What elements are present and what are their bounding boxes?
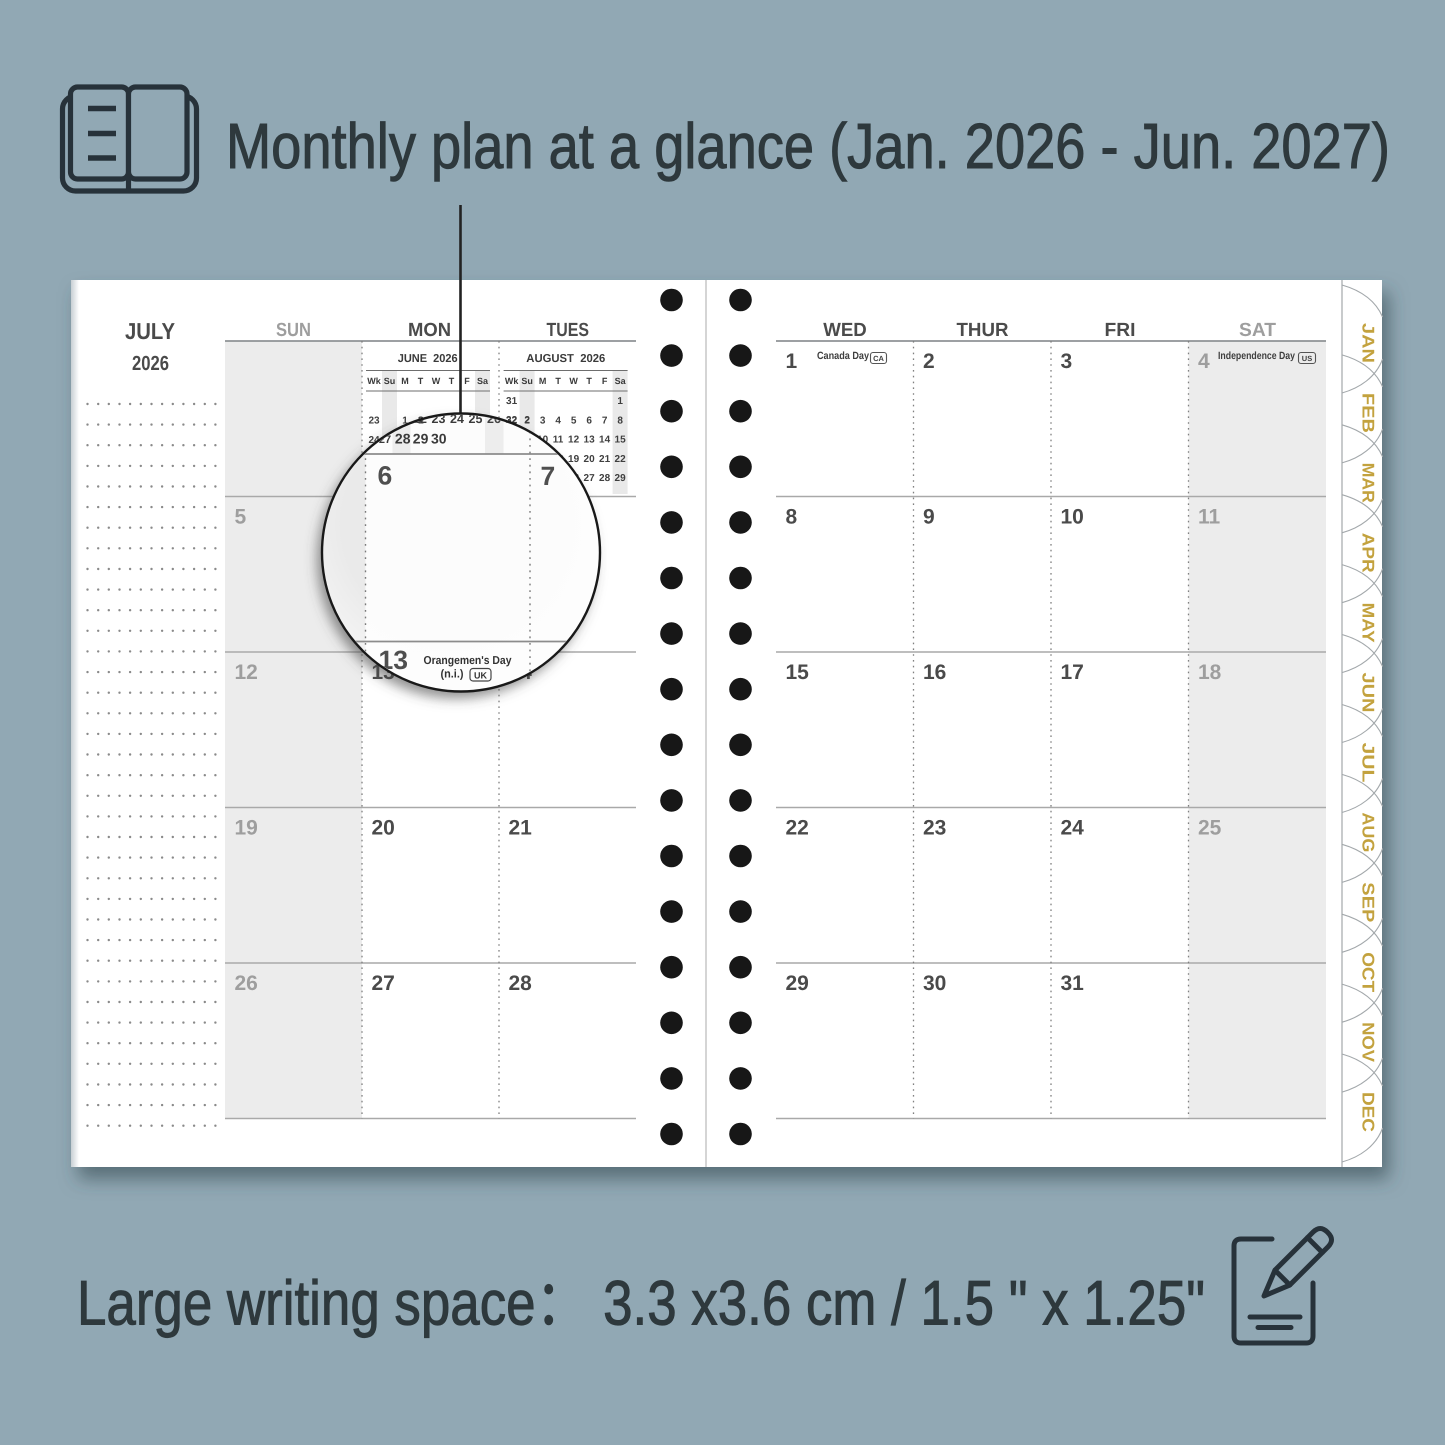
svg-text:MAY: MAY	[1359, 603, 1378, 644]
svg-text:19: 19	[235, 817, 258, 840]
svg-text:5: 5	[235, 506, 247, 529]
svg-text:Sa: Sa	[615, 376, 627, 386]
svg-text:7: 7	[602, 415, 608, 426]
svg-text:T: T	[418, 376, 424, 386]
svg-text:17: 17	[1061, 661, 1084, 684]
svg-text:Wk: Wk	[505, 376, 519, 386]
svg-text:APR: APR	[1359, 533, 1378, 573]
svg-text:UK: UK	[474, 670, 487, 680]
svg-text:20: 20	[372, 817, 395, 840]
svg-text:NOV: NOV	[1359, 1022, 1378, 1063]
svg-text:Orangemen's Day: Orangemen's Day	[424, 655, 513, 667]
svg-text:29: 29	[615, 473, 627, 484]
svg-text:6: 6	[586, 415, 592, 426]
svg-text:SEP: SEP	[1359, 882, 1378, 922]
svg-text:Independence Day: Independence Day	[1218, 350, 1295, 362]
svg-text:4: 4	[1198, 350, 1210, 373]
svg-text:18: 18	[1198, 661, 1222, 684]
svg-text:AUG: AUG	[1359, 812, 1378, 852]
svg-text:W: W	[569, 376, 578, 386]
svg-text:12: 12	[568, 435, 580, 446]
svg-text:FEB: FEB	[1359, 393, 1378, 433]
svg-text:F: F	[602, 376, 608, 386]
svg-text:3: 3	[1061, 350, 1073, 373]
svg-text:TUES: TUES	[547, 320, 590, 341]
svg-text:19: 19	[568, 454, 580, 465]
svg-text:Monthly plan at a glance (Jan.: Monthly plan at a glance (Jan. 2026 - Ju…	[226, 110, 1390, 182]
svg-text:31: 31	[506, 396, 518, 407]
svg-text:Su: Su	[521, 376, 533, 386]
svg-text:24: 24	[1061, 817, 1085, 840]
svg-text:SUN: SUN	[276, 320, 311, 341]
svg-text:13: 13	[584, 435, 596, 446]
svg-text:9: 9	[923, 506, 935, 529]
svg-text:23: 23	[923, 817, 946, 840]
svg-text:1: 1	[617, 396, 623, 407]
svg-text:Su: Su	[384, 376, 396, 386]
svg-text:22: 22	[615, 454, 627, 465]
svg-text:27: 27	[584, 473, 596, 484]
svg-text:Sa: Sa	[477, 376, 489, 386]
svg-text:1: 1	[786, 350, 798, 373]
svg-text:(n.i.): (n.i.)	[441, 669, 464, 681]
svg-text:21: 21	[509, 817, 533, 840]
svg-text:JUL: JUL	[1359, 743, 1378, 783]
svg-text:25: 25	[1198, 817, 1222, 840]
svg-text:15: 15	[786, 661, 810, 684]
svg-text:16: 16	[923, 661, 946, 684]
svg-text:8: 8	[617, 415, 623, 426]
svg-text:OCT: OCT	[1359, 952, 1378, 993]
svg-text:Wk: Wk	[367, 376, 381, 386]
svg-text:11: 11	[1198, 506, 1221, 529]
svg-text:20: 20	[584, 454, 596, 465]
svg-text:WED: WED	[823, 320, 867, 341]
svg-text:2: 2	[524, 415, 530, 426]
svg-text:MON: MON	[408, 320, 451, 341]
svg-text:28: 28	[599, 473, 611, 484]
svg-text:DEC: DEC	[1359, 1092, 1378, 1132]
svg-text:26: 26	[235, 972, 258, 995]
svg-text:12: 12	[235, 661, 258, 684]
svg-text:Canada Day: Canada Day	[817, 350, 869, 362]
svg-text:F: F	[464, 376, 470, 386]
svg-text:JAN: JAN	[1359, 323, 1378, 363]
svg-text:JUN: JUN	[1359, 673, 1378, 713]
svg-text:2: 2	[923, 350, 935, 373]
svg-text:US: US	[1302, 354, 1312, 363]
svg-text:T: T	[449, 376, 455, 386]
svg-text:W: W	[432, 376, 441, 386]
svg-text:2026: 2026	[132, 352, 169, 375]
svg-text:CA: CA	[873, 354, 884, 363]
svg-text:SAT: SAT	[1239, 320, 1276, 341]
svg-text:15: 15	[615, 435, 627, 446]
svg-text:22: 22	[786, 817, 809, 840]
svg-text:T: T	[586, 376, 592, 386]
svg-text:M: M	[401, 376, 409, 386]
svg-text:6: 6	[378, 461, 393, 491]
svg-text:30: 30	[923, 972, 946, 995]
svg-text:7: 7	[541, 461, 556, 491]
svg-text:11: 11	[553, 435, 564, 446]
svg-text:M: M	[539, 376, 547, 386]
svg-text:27: 27	[372, 972, 395, 995]
svg-text:MAR: MAR	[1359, 463, 1378, 503]
svg-text:JULY: JULY	[125, 318, 175, 344]
svg-text:14: 14	[599, 435, 611, 446]
svg-text:4: 4	[555, 415, 561, 426]
svg-text:AUGUST 2026: AUGUST 2026	[526, 353, 605, 365]
svg-text:Large writing space： 3.3 x3.6: Large writing space： 3.3 x3.6 cm / 1.5 "…	[77, 1269, 1205, 1339]
svg-text:29: 29	[786, 972, 809, 995]
svg-text:3: 3	[540, 415, 546, 426]
svg-text:T: T	[555, 376, 561, 386]
svg-text:5: 5	[571, 415, 577, 426]
svg-text:JUNE 2026: JUNE 2026	[398, 353, 458, 365]
svg-text:23: 23	[368, 416, 380, 427]
svg-text:10: 10	[1061, 506, 1084, 529]
svg-text:21: 21	[599, 454, 611, 465]
svg-text:31: 31	[1061, 972, 1085, 995]
svg-text:THUR: THUR	[957, 320, 1009, 341]
svg-text:8: 8	[786, 506, 798, 529]
svg-text:28: 28	[509, 972, 533, 995]
svg-text:FRI: FRI	[1105, 320, 1136, 341]
